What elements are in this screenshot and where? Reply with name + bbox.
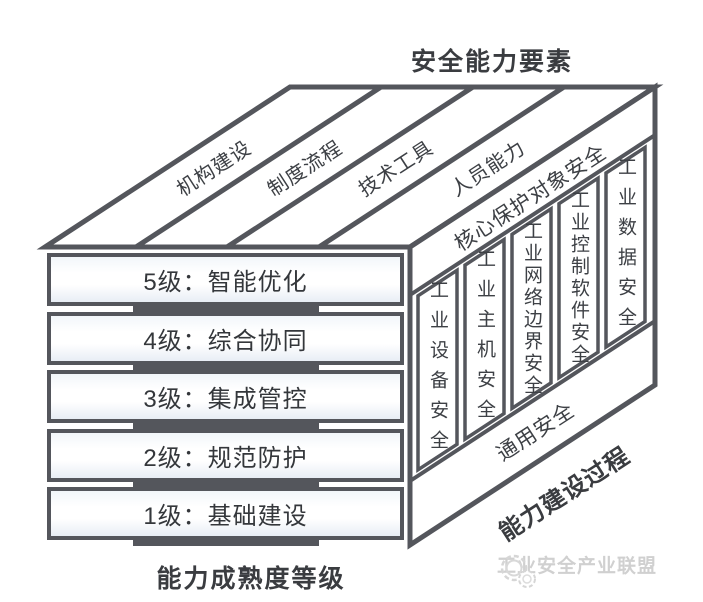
- capability-maturity-axis-label: 能力成熟度等级: [156, 559, 345, 595]
- diagram-canvas: 安全能力要素 机构建设 制度流程 技术工具 人员能力 5级：智能优化 4级：综合…: [0, 0, 703, 602]
- maturity-level-box-3: 3级：集成管控: [47, 370, 404, 423]
- protection-column-label-3: 工业网络边界安全: [522, 221, 541, 397]
- maturity-level-label-1: 1级：基础建设: [143, 496, 307, 531]
- maturity-level-box-5: 5级：智能优化: [47, 253, 404, 306]
- protection-column-label-5: 工业数据安全: [616, 157, 635, 337]
- protection-column-label-1: 工业设备安全: [428, 280, 447, 460]
- gear-icon: [497, 551, 541, 593]
- maturity-level-box-1: 1级：基础建设: [47, 487, 404, 540]
- diagram-title: 安全能力要素: [411, 42, 573, 78]
- maturity-level-label-2: 2级：规范防护: [143, 438, 307, 473]
- protection-column-label-4: 工业控制软件安全: [569, 190, 588, 366]
- maturity-level-label-5: 5级：智能优化: [143, 262, 307, 297]
- alliance-logo: 工业安全产业联盟: [497, 551, 657, 578]
- maturity-level-box-4: 4级：综合协同: [47, 312, 404, 365]
- protection-column-label-2: 工业主机安全: [475, 249, 494, 429]
- maturity-level-label-4: 4级：综合协同: [143, 321, 307, 356]
- maturity-level-label-3: 3级：集成管控: [143, 379, 307, 414]
- maturity-level-box-2: 2级：规范防护: [47, 429, 404, 482]
